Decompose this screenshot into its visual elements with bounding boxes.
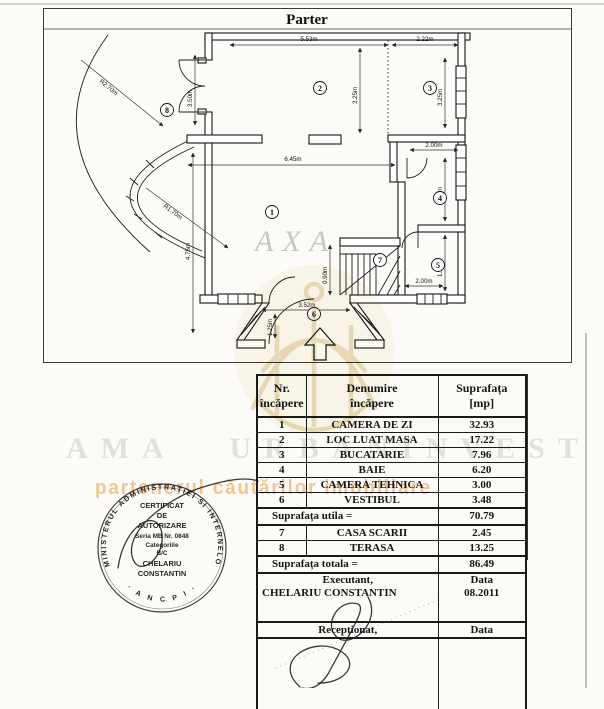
svg-text:6: 6 (312, 310, 316, 319)
svg-text:R1.70m: R1.70m (162, 203, 184, 221)
svg-text:7: 7 (378, 256, 382, 265)
stamp-line6: B/C (156, 550, 167, 557)
room-label-6: 6 (308, 308, 321, 321)
svg-text:4.75m: 4.75m (185, 243, 192, 260)
table-double-border (527, 374, 528, 560)
svg-text:1.25m: 1.25m (267, 319, 274, 336)
executant-date-cell: Data 08.2011 (438, 573, 526, 622)
svg-text:· A N C P I ·: · A N C P I · (126, 582, 199, 604)
svg-text:3.25m: 3.25m (437, 89, 444, 106)
svg-text:2: 2 (318, 84, 322, 93)
svg-text:3.50m: 3.50m (187, 90, 194, 107)
table-row: 3BUCATARIE7.96 (257, 448, 526, 463)
room-label-5: 5 (432, 259, 445, 272)
svg-text:4: 4 (438, 194, 442, 203)
table-row: 6VESTIBUL3.48 (257, 493, 526, 509)
header-nr: Nr.încăpere (257, 375, 306, 417)
table-row: 2LOC LUAT MASA17.22 (257, 433, 526, 448)
executant-name: CHELARIU CONSTANTIN (258, 587, 438, 600)
signature-cell (257, 638, 438, 709)
walls (187, 33, 470, 303)
total-value: 86.49 (438, 556, 526, 573)
table-row: 8TERASA13.25 (257, 541, 526, 557)
plan-title: Parter (286, 12, 328, 28)
executant-row: Executant, CHELARIU CONSTANTIN Data 08.2… (257, 573, 526, 622)
stamp-line4: Seria MB Nr. 0848 (135, 533, 189, 540)
stamp-line1: CERTIFICAT (140, 501, 184, 510)
svg-text:3: 3 (428, 84, 432, 93)
axa-watermark: AXA (253, 225, 337, 258)
table-header-row: Nr.încăpere Denumireîncăpere Suprafața[m… (257, 375, 526, 417)
room-label-1: 1 (266, 206, 279, 219)
table-row: 1CAMERA DE ZI32.93 (257, 417, 526, 433)
svg-text:3.25m: 3.25m (352, 87, 359, 104)
svg-text:2.00m: 2.00m (415, 278, 432, 285)
table-row: 4BAIE6.20 (257, 463, 526, 478)
svg-text:MINISTERUL ADMINISTRATIEI SI I: MINISTERUL ADMINISTRATIEI SI INTERNELOR (77, 462, 225, 568)
staircase (340, 246, 400, 295)
room-label-3: 3 (424, 82, 437, 95)
svg-text:8: 8 (165, 106, 169, 115)
stamp-line5: Categoriile (145, 542, 178, 549)
receptionat-label: Recepționat, (257, 622, 438, 638)
subtotal-value: 70.79 (438, 508, 526, 525)
room-label-8: 8 (161, 104, 174, 117)
executant-label: Executant, (258, 574, 438, 587)
stamp-line7: CHELARIU (143, 559, 182, 568)
svg-text:0.90m: 0.90m (322, 267, 329, 284)
plan-frame (44, 9, 572, 363)
executant-cell: Executant, CHELARIU CONSTANTIN (257, 573, 438, 622)
signature-area-row (257, 638, 526, 709)
room-label-2: 2 (314, 82, 327, 95)
svg-text:1: 1 (270, 208, 274, 217)
table-row: 7CASA SCARII2.45 (257, 525, 526, 541)
header-denumire: Denumireîncăpere (306, 375, 438, 417)
total-row: Suprafața totala = 86.49 (257, 556, 526, 573)
stamp-line8: CONSTANTIN (138, 569, 187, 578)
authorization-stamp: MINISTERUL ADMINISTRATIEI SI INTERNELOR … (77, 462, 247, 634)
stamp-line2: DE (157, 511, 167, 520)
windows (218, 66, 466, 304)
receptionat-data-label: Data (438, 622, 526, 638)
svg-text:6.45m: 6.45m (284, 156, 301, 163)
svg-text:2.00m: 2.00m (425, 142, 442, 149)
receptionat-row: Recepționat, Data (257, 622, 526, 638)
svg-text:5: 5 (436, 261, 440, 270)
subtotal-row: Suprafața utila = 70.79 (257, 508, 526, 525)
table-row: 5CAMERA TEHNICA3.00 (257, 478, 526, 493)
entrance-arrow (305, 328, 335, 360)
stamp-line3: AUTORIZARE (137, 521, 186, 530)
areas-table: Nr.încăpere Denumireîncăpere Suprafața[m… (256, 374, 527, 709)
svg-text:2.22m: 2.22m (416, 36, 433, 43)
terrace-curved-walls (76, 35, 205, 258)
executant-date: 08.2011 (439, 587, 526, 600)
stamp-ring-text: MINISTERUL ADMINISTRATIEI SI INTERNELOR (77, 462, 225, 568)
svg-text:5.53m: 5.53m (300, 36, 317, 43)
total-label: Suprafața totala = (257, 556, 438, 573)
stamp-ancpi-text: · A N C P I · (126, 582, 199, 604)
header-suprafata: Suprafața[mp] (438, 375, 526, 417)
subtotal-label: Suprafața utila = (257, 508, 438, 525)
room-label-7: 7 (374, 254, 387, 267)
data-label: Data (439, 574, 526, 587)
room-label-4: 4 (434, 192, 447, 205)
signature-date-cell (438, 638, 526, 709)
floor-plan: Parter AXA (43, 8, 572, 363)
